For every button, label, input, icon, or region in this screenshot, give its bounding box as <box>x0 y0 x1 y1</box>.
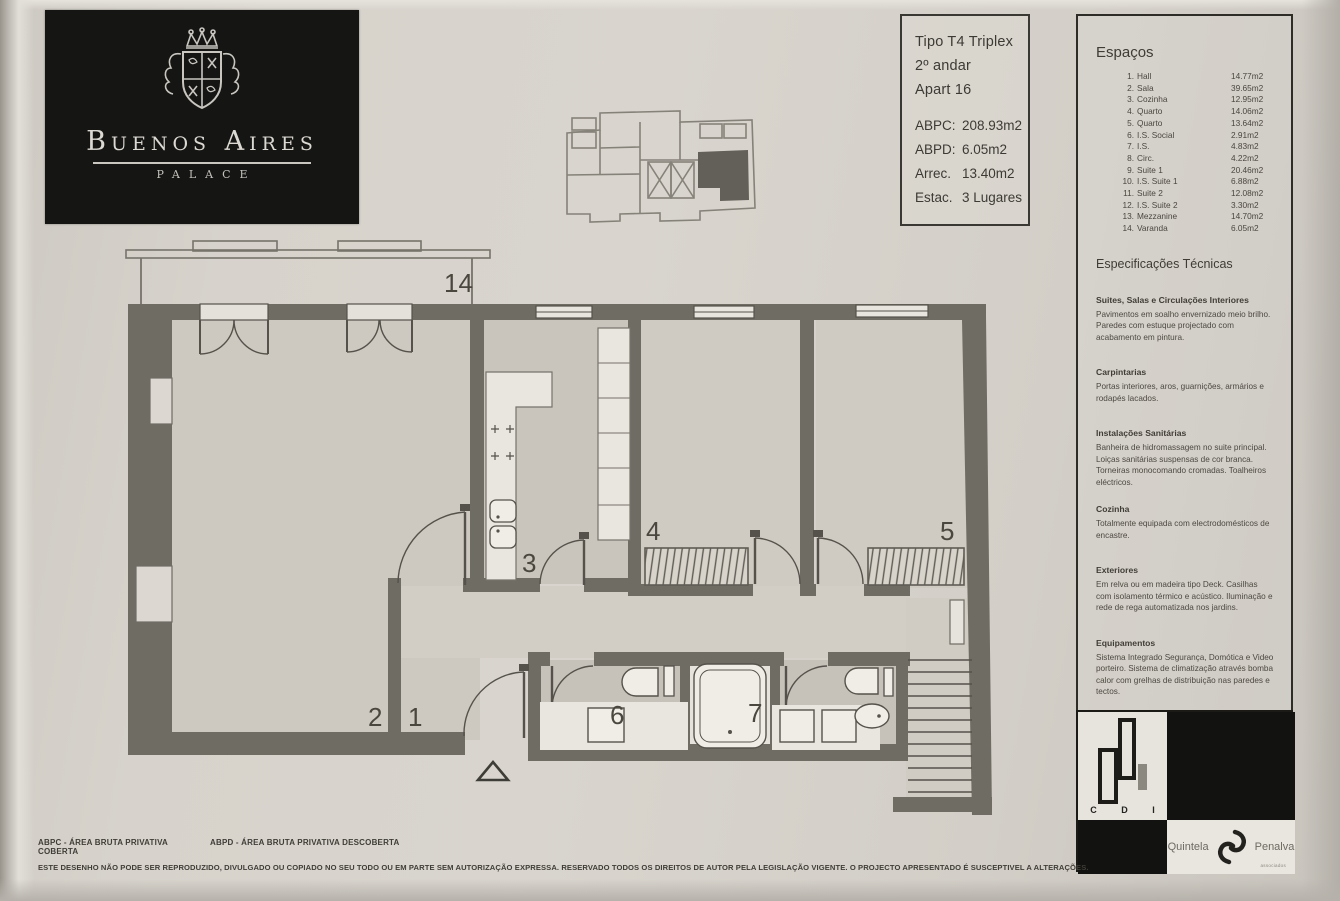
space-num: 8. <box>1114 153 1134 165</box>
space-row: 2.Sala39.65m2 <box>1114 83 1279 95</box>
brand-name: Buenos Aires <box>86 126 318 157</box>
spaces-list: 1.Hall14.77m2 2.Sala39.65m2 3.Cozinha12.… <box>1114 71 1279 235</box>
grid-black-top <box>1167 712 1295 820</box>
cdi-letters: C D I <box>1078 805 1167 815</box>
space-area: 12.95m2 <box>1231 94 1279 106</box>
footer-abpc: ABPC - ÁREA BRUTA PRIVATIVA COBERTA <box>38 838 210 856</box>
quintela-penalva-logo: Quintela Penalva associados <box>1167 820 1295 874</box>
space-row: 11.Suite 212.08m2 <box>1114 188 1279 200</box>
specs-title: Especificações Técnicas <box>1096 257 1279 271</box>
cdi-mark-icon <box>1078 712 1167 818</box>
space-area: 14.77m2 <box>1231 71 1279 83</box>
space-num: 7. <box>1114 141 1134 153</box>
space-num: 10. <box>1114 176 1134 188</box>
space-name: I.S. Suite 1 <box>1137 176 1231 188</box>
space-num: 11. <box>1114 188 1134 200</box>
metric-abpd: ABPD: 6.05m2 <box>915 138 1028 162</box>
space-area: 6.88m2 <box>1231 176 1279 188</box>
entrance-marker <box>478 762 508 780</box>
space-num: 6. <box>1114 130 1134 142</box>
metric-label: ABPD: <box>915 138 962 162</box>
metric-value: 13.40m2 <box>962 162 1028 186</box>
spec-body: Banheira de hidromassagem no suite princ… <box>1096 442 1274 488</box>
unit-floor: 2º andar <box>915 54 1028 78</box>
unit-type: Tipo T4 Triplex <box>915 30 1028 54</box>
cdi-letter-c: C <box>1090 805 1097 815</box>
space-area: 4.83m2 <box>1231 141 1279 153</box>
space-name: Hall <box>1137 71 1231 83</box>
metric-label: Estac. <box>915 186 962 210</box>
space-name: I.S. Social <box>1137 130 1231 142</box>
footer: ABPC - ÁREA BRUTA PRIVATIVA COBERTA ABPD… <box>38 838 938 872</box>
metric-estac: Estac. 3 Lugares <box>915 186 1028 210</box>
footer-abpd: ABPD - ÁREA BRUTA PRIVATIVA DESCOBERTA <box>210 838 400 856</box>
space-name: Quarto <box>1137 106 1231 118</box>
spec-section-sanitarias: Instalações Sanitárias Banheira de hidro… <box>1096 428 1279 488</box>
label-cozinha: 3 <box>522 548 536 578</box>
spec-section-equipamentos: Equipamentos Sistema Integrado Segurança… <box>1096 638 1279 698</box>
space-name: Sala <box>1137 83 1231 95</box>
space-row: 3.Cozinha12.95m2 <box>1114 94 1279 106</box>
spec-body: Pavimentos em soalho envernizado meio br… <box>1096 309 1274 344</box>
space-row: 12.I.S. Suite 23.30m2 <box>1114 200 1279 212</box>
spec-body: Portas interiores, aros, guarnições, arm… <box>1096 381 1274 404</box>
space-name: Varanda <box>1137 223 1231 235</box>
metric-label: ABPC: <box>915 114 962 138</box>
bidet7-icon <box>855 704 889 728</box>
metric-value: 3 Lugares <box>962 186 1028 210</box>
cdi-letter-i: I <box>1152 805 1155 815</box>
spec-heading: Carpintarias <box>1096 367 1279 377</box>
logo-grid: C D I Quintela Penalva associados <box>1076 710 1293 872</box>
metric-abpc: ABPC: 208.93m2 <box>915 114 1028 138</box>
room-circ <box>400 586 910 658</box>
space-area: 2.91m2 <box>1231 130 1279 142</box>
agency-name-1: Quintela <box>1168 841 1209 853</box>
metric-value: 6.05m2 <box>962 138 1028 162</box>
spec-heading: Cozinha <box>1096 504 1279 514</box>
key-plan <box>567 111 755 222</box>
metric-arrec: Arrec. 13.40m2 <box>915 162 1028 186</box>
space-name: Suite 1 <box>1137 165 1231 177</box>
agency-name-2: Penalva <box>1255 841 1295 853</box>
sink7a-icon <box>780 710 814 742</box>
space-name: Mezzanine <box>1137 211 1231 223</box>
grid-black-bottom <box>1078 820 1167 874</box>
space-area: 14.70m2 <box>1231 211 1279 223</box>
space-area: 4.22m2 <box>1231 153 1279 165</box>
space-row: 8.Circ.4.22m2 <box>1114 153 1279 165</box>
space-name: Suite 2 <box>1137 188 1231 200</box>
space-num: 14. <box>1114 223 1134 235</box>
space-row: 1.Hall14.77m2 <box>1114 71 1279 83</box>
space-area: 14.06m2 <box>1231 106 1279 118</box>
brand-subtitle: PALACE <box>147 168 256 181</box>
space-area: 3.30m2 <box>1231 200 1279 212</box>
label-sala: 2 <box>368 702 382 732</box>
spec-section-interiores: Suites, Salas e Circulações Interiores P… <box>1096 295 1279 344</box>
space-name: Circ. <box>1137 153 1231 165</box>
space-area: 13.64m2 <box>1231 118 1279 130</box>
spec-section-cozinha: Cozinha Totalmente equipada com electrod… <box>1096 504 1279 541</box>
space-area: 12.08m2 <box>1231 188 1279 200</box>
space-row: 5.Quarto13.64m2 <box>1114 118 1279 130</box>
footer-legal: ESTE DESENHO NÃO PODE SER REPRODUZIDO, D… <box>38 863 938 872</box>
space-area: 20.46m2 <box>1231 165 1279 177</box>
spaces-title: Espaços <box>1096 44 1279 61</box>
spec-heading: Suites, Salas e Circulações Interiores <box>1096 295 1279 305</box>
agency-subtitle: associados <box>1260 863 1286 868</box>
space-row: 14.Varanda6.05m2 <box>1114 223 1279 235</box>
unit-number: Apart 16 <box>915 78 1028 102</box>
space-num: 12. <box>1114 200 1134 212</box>
spec-heading: Exteriores <box>1096 565 1279 575</box>
space-num: 5. <box>1114 118 1134 130</box>
balcony <box>126 241 490 305</box>
brand-logo-box: Buenos Aires PALACE <box>45 10 359 224</box>
metric-value: 208.93m2 <box>962 114 1028 138</box>
label-quarto4: 4 <box>646 516 660 546</box>
cdi-letter-d: D <box>1121 805 1128 815</box>
cdi-logo: C D I <box>1078 712 1167 820</box>
label-is6: 6 <box>610 700 624 730</box>
space-num: 4. <box>1114 106 1134 118</box>
space-row: 10.I.S. Suite 16.88m2 <box>1114 176 1279 188</box>
space-num: 3. <box>1114 94 1134 106</box>
space-num: 1. <box>1114 71 1134 83</box>
crest-icon <box>137 24 267 124</box>
toilet6-icon <box>622 666 674 696</box>
metric-label: Arrec. <box>915 162 962 186</box>
space-area: 39.65m2 <box>1231 83 1279 95</box>
space-num: 9. <box>1114 165 1134 177</box>
agency-mark-icon <box>1215 829 1249 865</box>
space-row: 7.I.S.4.83m2 <box>1114 141 1279 153</box>
space-row: 9.Suite 120.46m2 <box>1114 165 1279 177</box>
sink7b-icon <box>822 710 856 742</box>
space-row: 13.Mezzanine14.70m2 <box>1114 211 1279 223</box>
space-num: 13. <box>1114 211 1134 223</box>
brand-rule <box>93 162 311 164</box>
spec-section-carpintarias: Carpintarias Portas interiores, aros, gu… <box>1096 367 1279 404</box>
space-name: I.S. Suite 2 <box>1137 200 1231 212</box>
space-row: 6.I.S. Social2.91m2 <box>1114 130 1279 142</box>
spec-body: Totalmente equipada com electrodoméstico… <box>1096 518 1274 541</box>
spec-heading: Instalações Sanitárias <box>1096 428 1279 438</box>
space-name: Quarto <box>1137 118 1231 130</box>
spec-heading: Equipamentos <box>1096 638 1279 648</box>
label-hall: 1 <box>408 702 422 732</box>
label-is7: 7 <box>748 698 762 728</box>
spec-body: Em relva ou em madeira tipo Deck. Casilh… <box>1096 579 1274 614</box>
toilet7-icon <box>845 668 893 696</box>
label-varanda: 14 <box>444 268 473 298</box>
kitchen-cabinets <box>598 328 630 540</box>
space-row: 4.Quarto14.06m2 <box>1114 106 1279 118</box>
spec-section-exteriores: Exteriores Em relva ou em madeira tipo D… <box>1096 565 1279 614</box>
space-name: I.S. <box>1137 141 1231 153</box>
space-name: Cozinha <box>1137 94 1231 106</box>
stair-door-gap <box>950 600 964 644</box>
spec-body: Sistema Integrado Segurança, Domótica e … <box>1096 652 1274 698</box>
unit-info-box: Tipo T4 Triplex 2º andar Apart 16 ABPC: … <box>900 14 1030 226</box>
space-num: 2. <box>1114 83 1134 95</box>
space-area: 6.05m2 <box>1231 223 1279 235</box>
label-quarto5: 5 <box>940 516 954 546</box>
